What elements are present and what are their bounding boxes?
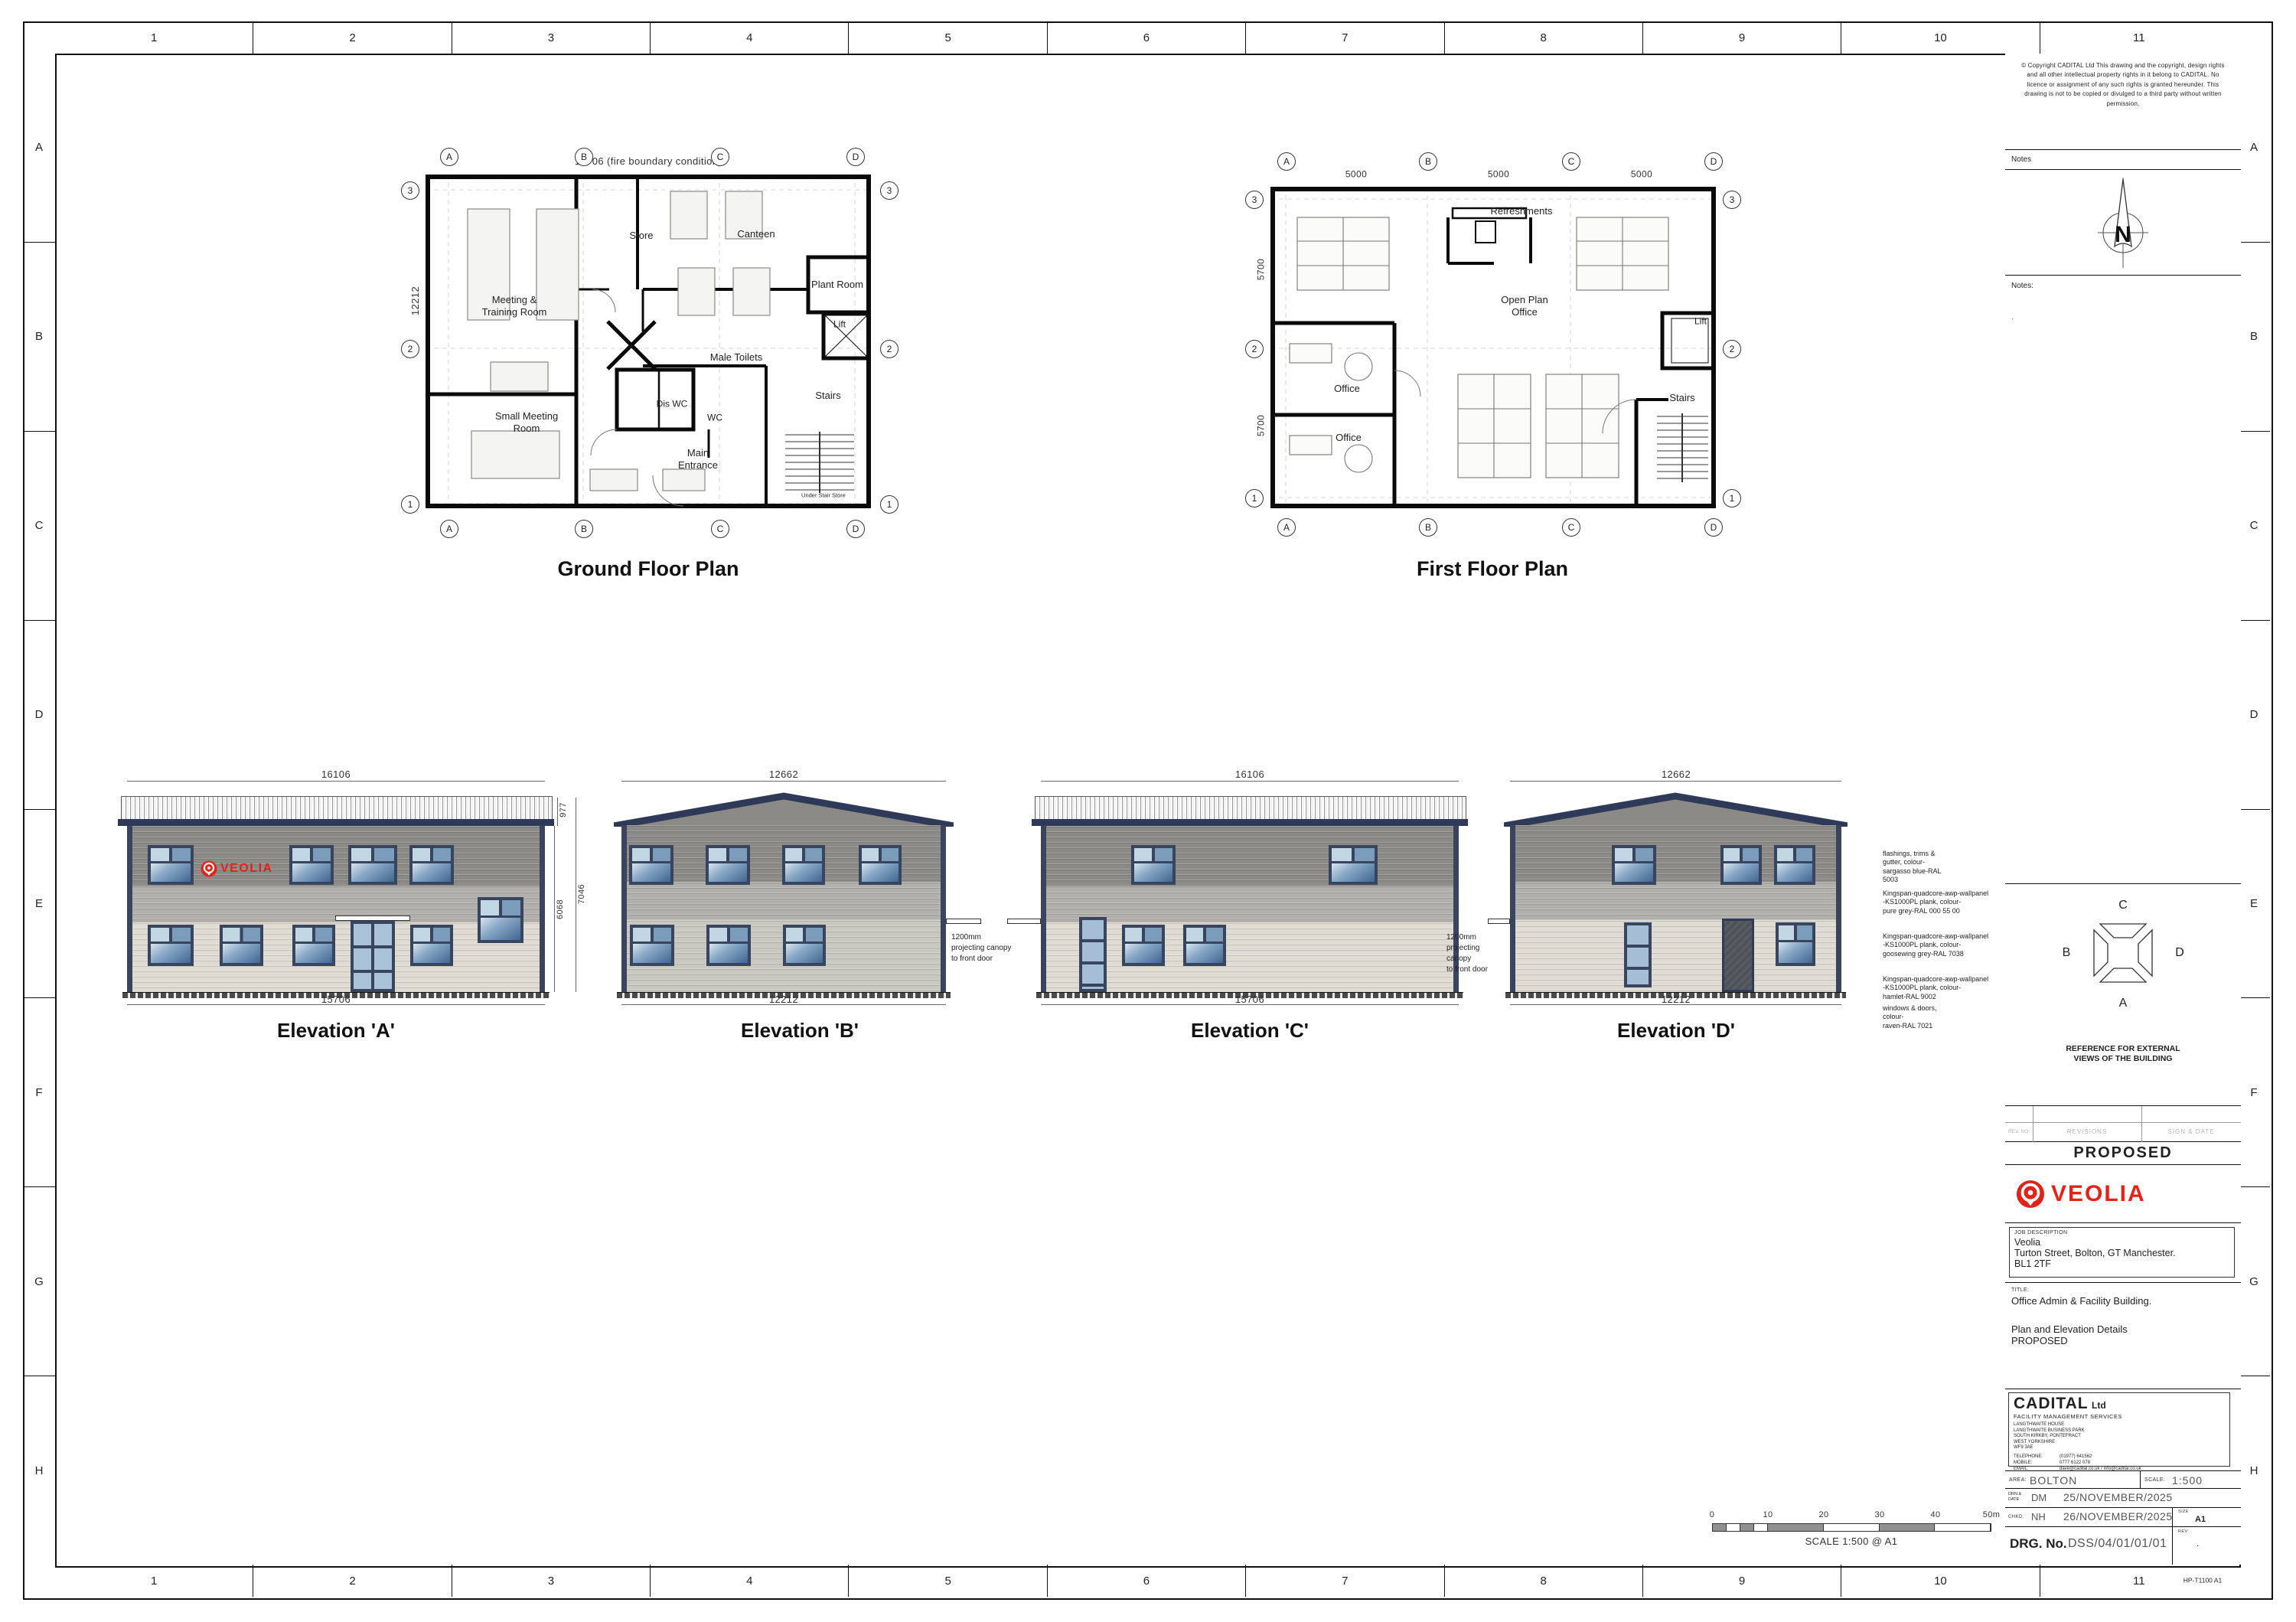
room-label: Under Stair Store <box>801 491 846 498</box>
grid-row-label: C <box>2238 431 2270 620</box>
window-top-pane <box>1724 848 1759 863</box>
checked-row: CHKD: NH 26/NOVEMBER/2025 SIZE A1 <box>2005 1508 2241 1527</box>
grid-bubble: D <box>846 520 865 538</box>
elev-b-dim-bottom: 12212 <box>769 994 798 1006</box>
window <box>1329 845 1378 885</box>
window-top-pane <box>632 848 670 863</box>
solid-door <box>1722 919 1754 992</box>
window-bottom-pane <box>862 863 899 882</box>
revision-strip: REV. NO. REVISIONS SIGN & DATE <box>2005 1106 2241 1142</box>
room-label: Dis WC <box>657 399 688 410</box>
window-top-pane <box>351 848 394 863</box>
material-note: windows & doors, colour- raven-RAL 7021 <box>1883 1004 2005 1030</box>
ground-floor-plan <box>426 175 871 508</box>
window-bottom-pane <box>1779 942 1812 963</box>
first-floor-plan <box>1270 187 1716 508</box>
glazed-door <box>1079 917 1107 992</box>
window <box>292 925 335 966</box>
window-bottom-pane <box>295 944 332 963</box>
grid-bubble: 3 <box>1723 191 1741 209</box>
scale-caption: SCALE 1:500 @ A1 <box>1805 1536 1898 1548</box>
room-label: Lift <box>833 319 846 331</box>
contact-label: MOBILE: <box>2014 1460 2060 1466</box>
window-top-pane <box>709 848 747 863</box>
job-line3: BL1 2TF <box>2014 1258 2229 1269</box>
entrance-door <box>351 921 395 992</box>
grid-col-label: 1 <box>55 1565 253 1597</box>
company-tagline: FACILITY MANAGEMENT SERVICES <box>2014 1413 2225 1420</box>
window <box>289 845 334 885</box>
window <box>783 925 826 966</box>
room-label: Small Meeting Room <box>495 410 558 436</box>
elev-a-dim-total: 7046 <box>577 884 588 904</box>
ff-dim-top-2: 5000 <box>1488 169 1509 181</box>
drawn-date: 25/NOVEMBER/2025 <box>2063 1491 2173 1503</box>
title-line3: PROPOSED <box>2011 1335 2235 1346</box>
window <box>1122 925 1165 966</box>
window <box>409 845 454 885</box>
material-note: flashings, trims & gutter, colour- sarga… <box>1883 850 2005 884</box>
rev-value: . <box>2197 1538 2199 1549</box>
grid-bubble: 3 <box>401 181 419 200</box>
grid-bubble: D <box>1704 152 1723 171</box>
svg-text:N: N <box>2115 222 2131 247</box>
contact-value: (01977) 641562 <box>2060 1454 2092 1460</box>
canopy-note-1: 1200mm projecting canopy to front door <box>951 932 1011 964</box>
window-bottom-pane <box>785 863 822 882</box>
veolia-sign: VEOLIA <box>201 860 273 877</box>
grid-bubble: D <box>846 148 865 166</box>
job-line1: Veolia <box>2014 1237 2229 1248</box>
room-label: Plant Room <box>811 279 863 291</box>
window-bottom-pane <box>1186 944 1223 963</box>
grid-bubble: D <box>1704 518 1723 537</box>
company-box: CADITAL Ltd FACILITY MANAGEMENT SERVICES… <box>2005 1389 2241 1471</box>
window-bottom-pane <box>151 944 191 963</box>
grid-bubble: B <box>575 148 593 166</box>
scale-bar-segment <box>1824 1524 1880 1531</box>
window-top-pane <box>1134 848 1172 863</box>
contact-row: TELEPHONE:(01977) 641562 <box>2014 1454 2225 1460</box>
window-top-pane <box>709 928 748 944</box>
contact-value: 0777 6122 078 <box>2060 1460 2090 1466</box>
grid-col-label: 4 <box>650 1565 848 1597</box>
job-line2: Turton Street, Bolton, GT Manchester. <box>2014 1248 2229 1258</box>
scale-tick-label: 50m <box>1983 1510 2001 1521</box>
room-label: Meeting & Training Room <box>482 294 547 319</box>
scale-bar-segment <box>1935 1524 1991 1531</box>
checked-date: 26/NOVEMBER/2025 <box>2063 1510 2173 1522</box>
elev-c-roof <box>1035 796 1466 821</box>
title-line2: Plan and Elevation Details <box>2011 1323 2235 1335</box>
grid-bubble: 3 <box>880 181 899 200</box>
window <box>148 845 194 885</box>
window-bottom-pane <box>632 863 670 882</box>
size-value: A1 <box>2195 1515 2206 1524</box>
window-bottom-pane <box>1777 863 1812 882</box>
room-label: Lift <box>1694 316 1707 328</box>
grid-band-right: ABCDEFGH <box>2238 54 2270 1565</box>
grid-col-label: 4 <box>650 21 848 54</box>
grid-col-label: 8 <box>1444 21 1642 54</box>
window <box>859 845 902 885</box>
scale-bar-segment <box>1754 1524 1768 1531</box>
veolia-sign-text: VEOLIA <box>220 862 273 876</box>
first-floor-title: First Floor Plan <box>1417 556 1568 583</box>
grid-bubble: 2 <box>1723 340 1741 358</box>
room-label: Male Toilets <box>710 351 762 364</box>
grid-row-label: B <box>2238 242 2270 431</box>
grid-col-label: 1 <box>55 21 253 54</box>
drg-label: DRG. No. <box>2010 1536 2067 1552</box>
grid-col-label: 11 <box>2040 21 2238 54</box>
elev-c-title: Elevation 'C' <box>1191 1018 1309 1043</box>
drg-row: DRG. No. DSS/04/01/01/01 REV: . <box>2005 1527 2241 1565</box>
grid-bubble: 1 <box>401 495 419 514</box>
view-reference-box: C B D A REFERENCE FOR EXTERNAL VIEWS OF … <box>2005 884 2241 1106</box>
window <box>1720 845 1762 885</box>
notes2-content: . <box>2011 313 2235 321</box>
scale-bar-segment <box>1727 1524 1740 1531</box>
window-top-pane <box>413 928 450 944</box>
material-note: Kingspan-quadcore-awp-wallpanel -KS1000P… <box>1883 975 2005 1001</box>
contact-label: TELEPHONE: <box>2014 1454 2060 1460</box>
company-suffix: Ltd <box>2092 1400 2106 1411</box>
ff-dim-top-1: 5000 <box>1345 169 1367 181</box>
elev-b-roof <box>614 790 954 827</box>
title-label: TITLE: <box>2011 1287 2235 1293</box>
gf-dim-left: 12212 <box>409 286 422 315</box>
grid-row-label: E <box>2238 809 2270 998</box>
company-address: LANGTHWAITE HOUSE LANGTHWAITE BUSINESS P… <box>2014 1422 2225 1451</box>
room-label: Office <box>1336 432 1362 444</box>
grid-row-label: A <box>2238 54 2270 242</box>
material-note: Kingspan-quadcore-awp-wallpanel -KS1000P… <box>1883 932 2005 958</box>
grid-bubble: A <box>440 520 458 538</box>
elev-b-dim-top: 12662 <box>769 769 798 781</box>
grid-bubble: A <box>1277 518 1296 537</box>
scale-bar <box>1712 1523 1991 1532</box>
window-top-pane <box>1779 925 1812 942</box>
drawn-initials: DM <box>2031 1492 2047 1503</box>
room-label: Main Entrance <box>678 447 718 472</box>
scale-label: SCALE: <box>2144 1477 2165 1483</box>
elev-d-dim-top: 12662 <box>1662 769 1691 781</box>
canopy-note-2: 1200mm projecting canopy to front door <box>1446 932 1492 975</box>
scale-bar-segment <box>1880 1524 1936 1531</box>
veolia-icon <box>201 860 217 877</box>
grid-row-label: B <box>23 242 55 431</box>
scale-tick-label: 0 <box>1710 1510 1715 1521</box>
window-top-pane <box>633 928 671 944</box>
window-top-pane <box>1777 848 1812 863</box>
window-top-pane <box>151 928 191 944</box>
window-bottom-pane <box>709 944 748 963</box>
ff-dim-left-2: 5700 <box>1256 415 1267 436</box>
window-top-pane <box>481 900 520 918</box>
elev-a-dim-top: 16106 <box>321 769 351 781</box>
job-box: JOB DESCRIPTION Veolia Turton Street, Bo… <box>2005 1223 2241 1283</box>
grid-bubble: C <box>711 148 729 166</box>
north-arrow-icon: N <box>2081 175 2165 271</box>
notes-label: Notes <box>2011 155 2031 164</box>
scale-bar-segment <box>1740 1524 1754 1531</box>
window <box>1612 845 1656 885</box>
grid-row-label: E <box>23 809 55 998</box>
elev-d-roof <box>1504 790 1848 827</box>
veolia-logo-text: VEOLIA <box>2051 1181 2146 1207</box>
title-line1: Office Admin & Facility Building. <box>2011 1295 2235 1307</box>
room-label: Canteen <box>737 228 775 240</box>
elev-c-dim-top: 16106 <box>1235 769 1264 781</box>
grid-bubble: B <box>1419 152 1437 171</box>
status-text: PROPOSED <box>2073 1144 2172 1162</box>
area-row: AREA: BOLTON SCALE: 1:500 <box>2005 1471 2241 1489</box>
status-bar: PROPOSED <box>2005 1142 2241 1165</box>
grid-bubble: A <box>1277 152 1296 171</box>
grid-col-label: 5 <box>848 1565 1046 1597</box>
window <box>782 845 825 885</box>
grid-band-left: ABCDEFGH <box>23 54 55 1565</box>
checked-initials: NH <box>2031 1511 2046 1522</box>
view-ref-caption: REFERENCE FOR EXTERNAL VIEWS OF THE BUIL… <box>2066 1044 2180 1064</box>
grid-col-label: 9 <box>1642 21 1841 54</box>
job-label: JOB DESCRIPTION <box>2014 1230 2229 1235</box>
grid-col-label: 8 <box>1444 1565 1642 1597</box>
window-top-pane <box>785 848 822 863</box>
window-bottom-pane <box>151 863 191 882</box>
grid-col-label: 10 <box>1841 1565 2039 1597</box>
grid-row-label: F <box>2238 997 2270 1186</box>
view-ref-c: C <box>2118 898 2128 913</box>
grid-band-top: 1234567891011 <box>55 21 2238 54</box>
window-bottom-pane <box>1724 863 1759 882</box>
window-top-pane <box>1125 928 1162 944</box>
grid-row-label: A <box>23 54 55 242</box>
elev-a-dim-bottom: 15706 <box>321 994 351 1006</box>
window-bottom-pane <box>223 944 260 963</box>
grid-bubble: C <box>1562 152 1580 171</box>
drawn-row: DRN.& DATE DM 25/NOVEMBER/2025 <box>2005 1489 2241 1508</box>
notes2-box: Notes: . <box>2005 276 2241 884</box>
window-top-pane <box>1186 928 1223 944</box>
scale-bar-segment <box>1713 1524 1727 1531</box>
grid-row-label: G <box>2238 1186 2270 1376</box>
scale-value: 1:500 <box>2172 1474 2203 1487</box>
window <box>706 925 751 966</box>
window <box>1776 922 1815 966</box>
grid-bubble: 2 <box>401 340 419 358</box>
window <box>348 845 397 885</box>
elev-d-dim-bottom: 12212 <box>1662 994 1691 1006</box>
copyright-box: © Copyright CADITAL Ltd This drawing and… <box>2005 54 2241 150</box>
area-value: BOLTON <box>2030 1474 2077 1487</box>
window-top-pane <box>295 928 332 944</box>
grid-col-label: 9 <box>1642 1565 1841 1597</box>
elev-b-title: Elevation 'B' <box>741 1018 859 1043</box>
window <box>220 925 263 966</box>
grid-row-label: D <box>2238 620 2270 809</box>
rev-label: REV: <box>2178 1529 2189 1534</box>
checked-label: CHKD: <box>2008 1515 2024 1519</box>
window-top-pane <box>292 848 331 863</box>
grid-row-label: D <box>23 620 55 809</box>
window-top-pane <box>1615 848 1653 863</box>
veolia-logo-icon <box>2016 1180 2045 1209</box>
view-reference-icon <box>2085 915 2161 991</box>
window-bottom-pane <box>1615 863 1653 882</box>
gf-dim-top: 15706 (fire boundary condition) <box>575 155 722 168</box>
scale-tick-label: 10 <box>1763 1510 1773 1521</box>
copyright-text: © Copyright CADITAL Ltd This drawing and… <box>2021 62 2224 107</box>
room-label: Stairs <box>815 390 840 402</box>
window-bottom-pane <box>413 944 450 963</box>
window <box>1774 845 1815 885</box>
grid-col-label: 5 <box>848 21 1046 54</box>
window <box>410 925 453 966</box>
window-top-pane <box>151 848 191 863</box>
window <box>148 925 194 966</box>
grid-col-label: 3 <box>452 1565 650 1597</box>
grid-bubble: C <box>1562 518 1580 537</box>
glazed-door <box>1624 922 1652 987</box>
sign-date-header: SIGN & DATE <box>2167 1128 2214 1136</box>
room-label: Refreshments <box>1491 205 1553 217</box>
window-bottom-pane <box>481 918 520 940</box>
elev-a-dim-roof: 977 <box>559 802 569 818</box>
grid-row-label: F <box>23 997 55 1186</box>
grid-bubble: 3 <box>1245 191 1264 209</box>
scale-tick-label: 30 <box>1874 1510 1884 1521</box>
grid-bubble: 1 <box>880 495 899 514</box>
room-label: Office <box>1334 383 1360 395</box>
drawing-sheet: 1234567891011 1234567891011 ABCDEFGH ABC… <box>0 0 2296 1622</box>
window-bottom-pane <box>351 863 394 882</box>
window-bottom-pane <box>709 863 747 882</box>
grid-col-label: 7 <box>1245 21 1443 54</box>
ff-dim-left-1: 5700 <box>1256 259 1267 280</box>
window-top-pane <box>862 848 899 863</box>
grid-band-bottom: 1234567891011 <box>55 1565 2238 1597</box>
drawn-label: DRN.& DATE <box>2008 1492 2021 1503</box>
elev-a-roof <box>121 796 553 821</box>
window-top-pane <box>413 848 451 863</box>
revisions-header: REVISIONS <box>2067 1128 2108 1136</box>
rev-no-header: REV. NO. <box>2008 1129 2030 1135</box>
scale-bar-segment <box>1768 1524 1824 1531</box>
window-top-pane <box>223 928 260 944</box>
grid-row-label: C <box>23 431 55 620</box>
room-label: Store <box>629 230 653 242</box>
window <box>706 845 750 885</box>
window-bottom-pane <box>292 863 331 882</box>
grid-col-label: 2 <box>253 21 451 54</box>
window-top-pane <box>1332 848 1375 863</box>
size-label: SIZE <box>2178 1509 2189 1514</box>
elev-c-dim-bottom: 15706 <box>1235 994 1264 1006</box>
north-box: N <box>2005 170 2241 276</box>
grid-row-label: H <box>2238 1376 2270 1565</box>
logo-box: VEOLIA <box>2005 1165 2241 1223</box>
window <box>629 845 673 885</box>
grid-bubble: 2 <box>1245 340 1264 358</box>
room-label: Open Plan Office <box>1501 294 1548 319</box>
grid-col-label: 2 <box>253 1565 451 1597</box>
grid-col-label: 7 <box>1245 1565 1443 1597</box>
scale-tick-label: 20 <box>1818 1510 1828 1521</box>
area-label: AREA: <box>2009 1477 2027 1483</box>
contact-row: MOBILE:0777 6122 078 <box>2014 1460 2225 1466</box>
grid-col-label: 6 <box>1047 1565 1245 1597</box>
view-ref-d: D <box>2175 945 2184 961</box>
window <box>1131 845 1176 885</box>
ground-floor-title: Ground Floor Plan <box>558 556 739 583</box>
title-box: TITLE: Office Admin & Facility Building.… <box>2005 1283 2241 1389</box>
grid-bubble: 2 <box>880 340 899 358</box>
room-label: WC <box>707 413 722 424</box>
window-bottom-pane <box>413 863 451 882</box>
grid-row-label: G <box>23 1186 55 1376</box>
notes-bar: Notes <box>2005 150 2241 170</box>
scale-tick-label: 40 <box>1930 1510 1940 1521</box>
window <box>478 897 523 943</box>
room-label: Stairs <box>1669 392 1694 404</box>
grid-bubble: C <box>711 520 729 538</box>
grid-col-label: 3 <box>452 21 650 54</box>
window <box>630 925 674 966</box>
view-ref-b: B <box>2063 945 2071 961</box>
paper-ref: HP-T1100 A1 <box>2183 1577 2222 1585</box>
grid-bubble: 1 <box>1723 489 1741 507</box>
window-bottom-pane <box>1332 863 1375 882</box>
elev-a-dim-wall: 6068 <box>556 899 566 919</box>
grid-bubble: 1 <box>1245 489 1264 507</box>
grid-bubble: B <box>1419 518 1437 537</box>
window-bottom-pane <box>633 944 671 963</box>
material-note: Kingspan-quadcore-awp-wallpanel -KS1000P… <box>1883 889 2005 915</box>
window <box>1183 925 1226 966</box>
window-bottom-pane <box>786 944 823 963</box>
elev-d-title: Elevation 'D' <box>1617 1018 1735 1043</box>
window-bottom-pane <box>1125 944 1162 963</box>
drg-value: DSS/04/01/01/01 <box>2068 1537 2167 1551</box>
window-bottom-pane <box>1134 863 1172 882</box>
grid-row-label: H <box>23 1376 55 1565</box>
ff-dim-top-3: 5000 <box>1631 169 1652 181</box>
notes2-label: Notes: <box>2011 282 2235 290</box>
company-name: CADITAL <box>2014 1395 2089 1412</box>
view-ref-a: A <box>2119 996 2128 1011</box>
window-top-pane <box>786 928 823 944</box>
grid-col-label: 6 <box>1047 21 1245 54</box>
grid-bubble: A <box>440 148 458 166</box>
grid-bubble: B <box>575 520 593 538</box>
elev-a-title: Elevation 'A' <box>277 1018 395 1043</box>
grid-col-label: 10 <box>1841 21 2039 54</box>
